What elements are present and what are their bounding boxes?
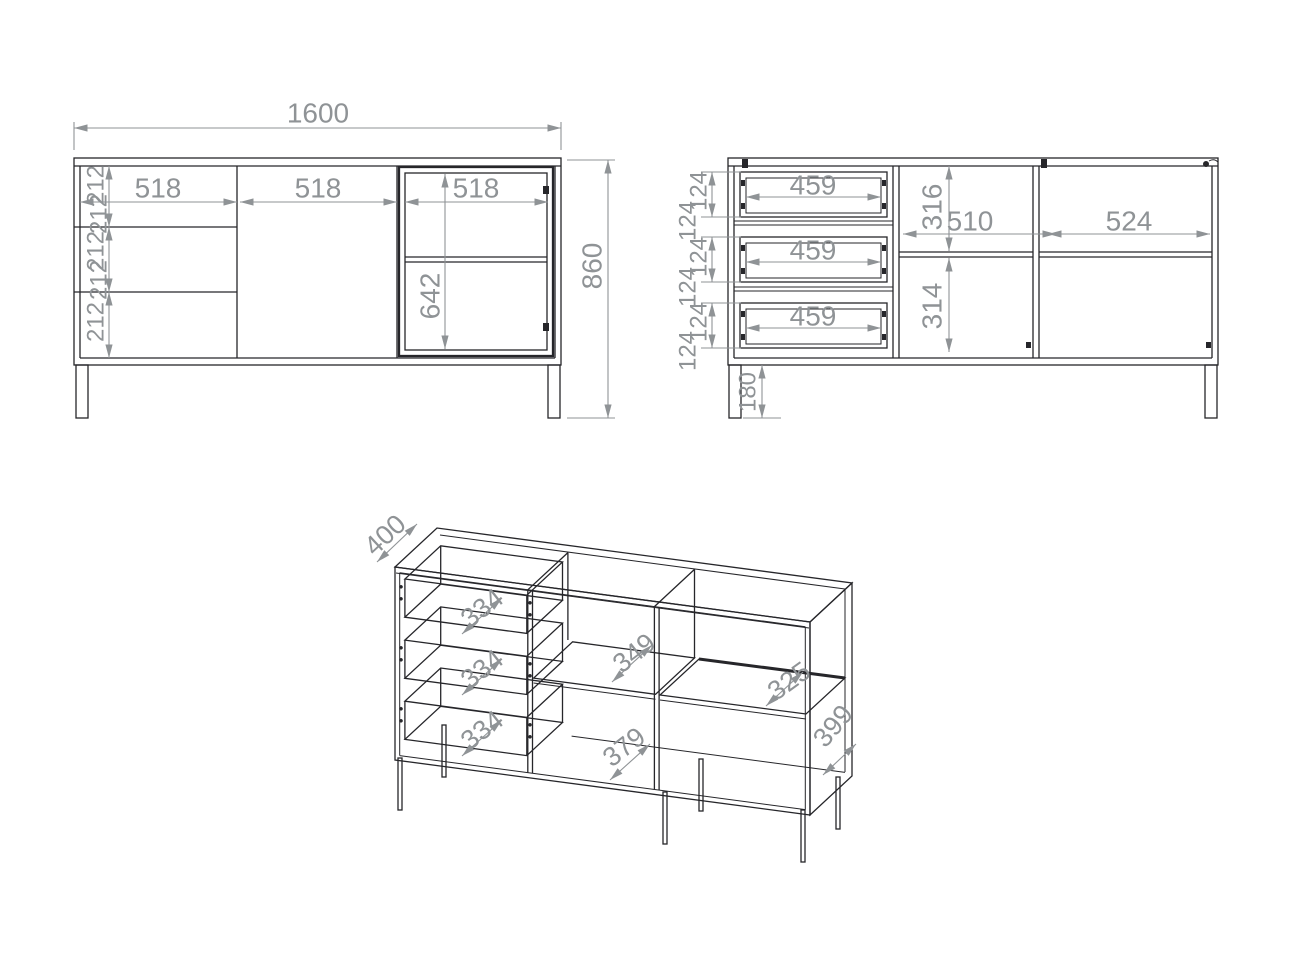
dim-label-leg-height: 180 xyxy=(735,372,762,412)
dim-label-door-opening: 642 xyxy=(415,273,446,320)
furniture-drawing: 1600 860 518 518 518 212 212 212 212 212 xyxy=(0,0,1297,972)
dim-label-middle-width: 510 xyxy=(947,206,994,237)
door-hinge-bottom xyxy=(543,323,549,331)
right-side-panel xyxy=(810,583,852,815)
dim-label-drawer-depth-1: 334 xyxy=(455,582,509,633)
dim-front-drawers: 212 212 212 212 212 xyxy=(83,165,113,358)
dim-label-section-3: 518 xyxy=(453,173,500,204)
leg-back-left xyxy=(442,725,446,777)
dim-compartments: 316 510 524 314 xyxy=(903,166,1210,352)
dim-label-right-shelf-depth: 325 xyxy=(762,656,816,707)
front-right-leg xyxy=(548,365,560,418)
dim-label-depth: 400 xyxy=(358,509,411,562)
hinge-top-right-curl xyxy=(1209,160,1218,162)
perspective-view: 400 334 334 334 349 379 325 399 xyxy=(358,509,859,862)
dim-label-drawer-width-2: 459 xyxy=(790,235,837,266)
dim-label-drawer-2: 212 xyxy=(86,194,113,234)
dim-label-box-height-2: 124 xyxy=(675,201,702,241)
leg-front-middle xyxy=(663,792,667,844)
leg-front-right xyxy=(801,810,805,862)
dim-label-lower-height: 314 xyxy=(917,283,948,330)
dim-label-section-2: 518 xyxy=(295,173,342,204)
hinge-top-right xyxy=(1203,161,1209,167)
dim-label-front-width: 1600 xyxy=(287,98,349,129)
leg-back-right xyxy=(836,777,840,829)
dim-label-drawer-depth-2: 334 xyxy=(455,643,509,694)
dim-label-drawer-depth-3: 334 xyxy=(455,704,509,755)
leg-front-left xyxy=(398,758,402,810)
technical-drawing-page: 1600 860 518 518 518 212 212 212 212 212 xyxy=(0,0,1297,972)
front-left-leg xyxy=(76,365,88,418)
dim-label-upper-height: 316 xyxy=(917,184,948,231)
right-shelf xyxy=(660,659,845,719)
dim-label-drawer-width-3: 459 xyxy=(790,301,837,332)
leg-back-middle xyxy=(699,759,703,811)
door-hinge-top xyxy=(543,186,549,194)
dim-front-height: 860 xyxy=(567,160,615,418)
dim-label-box-height-4: 124 xyxy=(675,267,702,307)
dim-label-drawer-width-1: 459 xyxy=(790,170,837,201)
dim-drawer-box-heights: 124 124 124 124 124 124 xyxy=(675,171,742,371)
top-panel-edge xyxy=(396,573,809,628)
dim-label-drawer-4: 212 xyxy=(86,260,113,300)
dim-label-box-height-6: 124 xyxy=(675,331,702,371)
interior-view: 459 459 459 124 124 124 124 124 124 316 … xyxy=(675,158,1219,418)
dim-leg-height: 180 xyxy=(735,365,782,418)
interior-right-leg xyxy=(1205,365,1217,418)
dim-label-middle-shelf-depth: 349 xyxy=(607,627,661,678)
interior-vertical-dividers xyxy=(893,166,1039,358)
dim-front-width: 1600 xyxy=(74,98,561,151)
front-frame xyxy=(395,567,810,815)
dim-drawer-widths: 459 459 459 xyxy=(746,170,881,332)
dim-label-front-height: 860 xyxy=(577,243,608,290)
dim-front-sections: 518 518 518 xyxy=(80,173,548,204)
dim-label-section-1: 518 xyxy=(135,173,182,204)
dim-label-bottom-depth: 379 xyxy=(597,721,651,772)
glass-door-midrail xyxy=(405,257,547,262)
interior-shelves xyxy=(899,252,1212,257)
shelf-front-edge xyxy=(534,683,656,699)
dim-label-side-depth: 399 xyxy=(807,699,859,753)
dim-label-right-width: 524 xyxy=(1106,206,1153,237)
front-view: 1600 860 518 518 518 212 212 212 212 212 xyxy=(74,98,615,419)
dim-label-drawer-5: 212 xyxy=(83,302,110,342)
